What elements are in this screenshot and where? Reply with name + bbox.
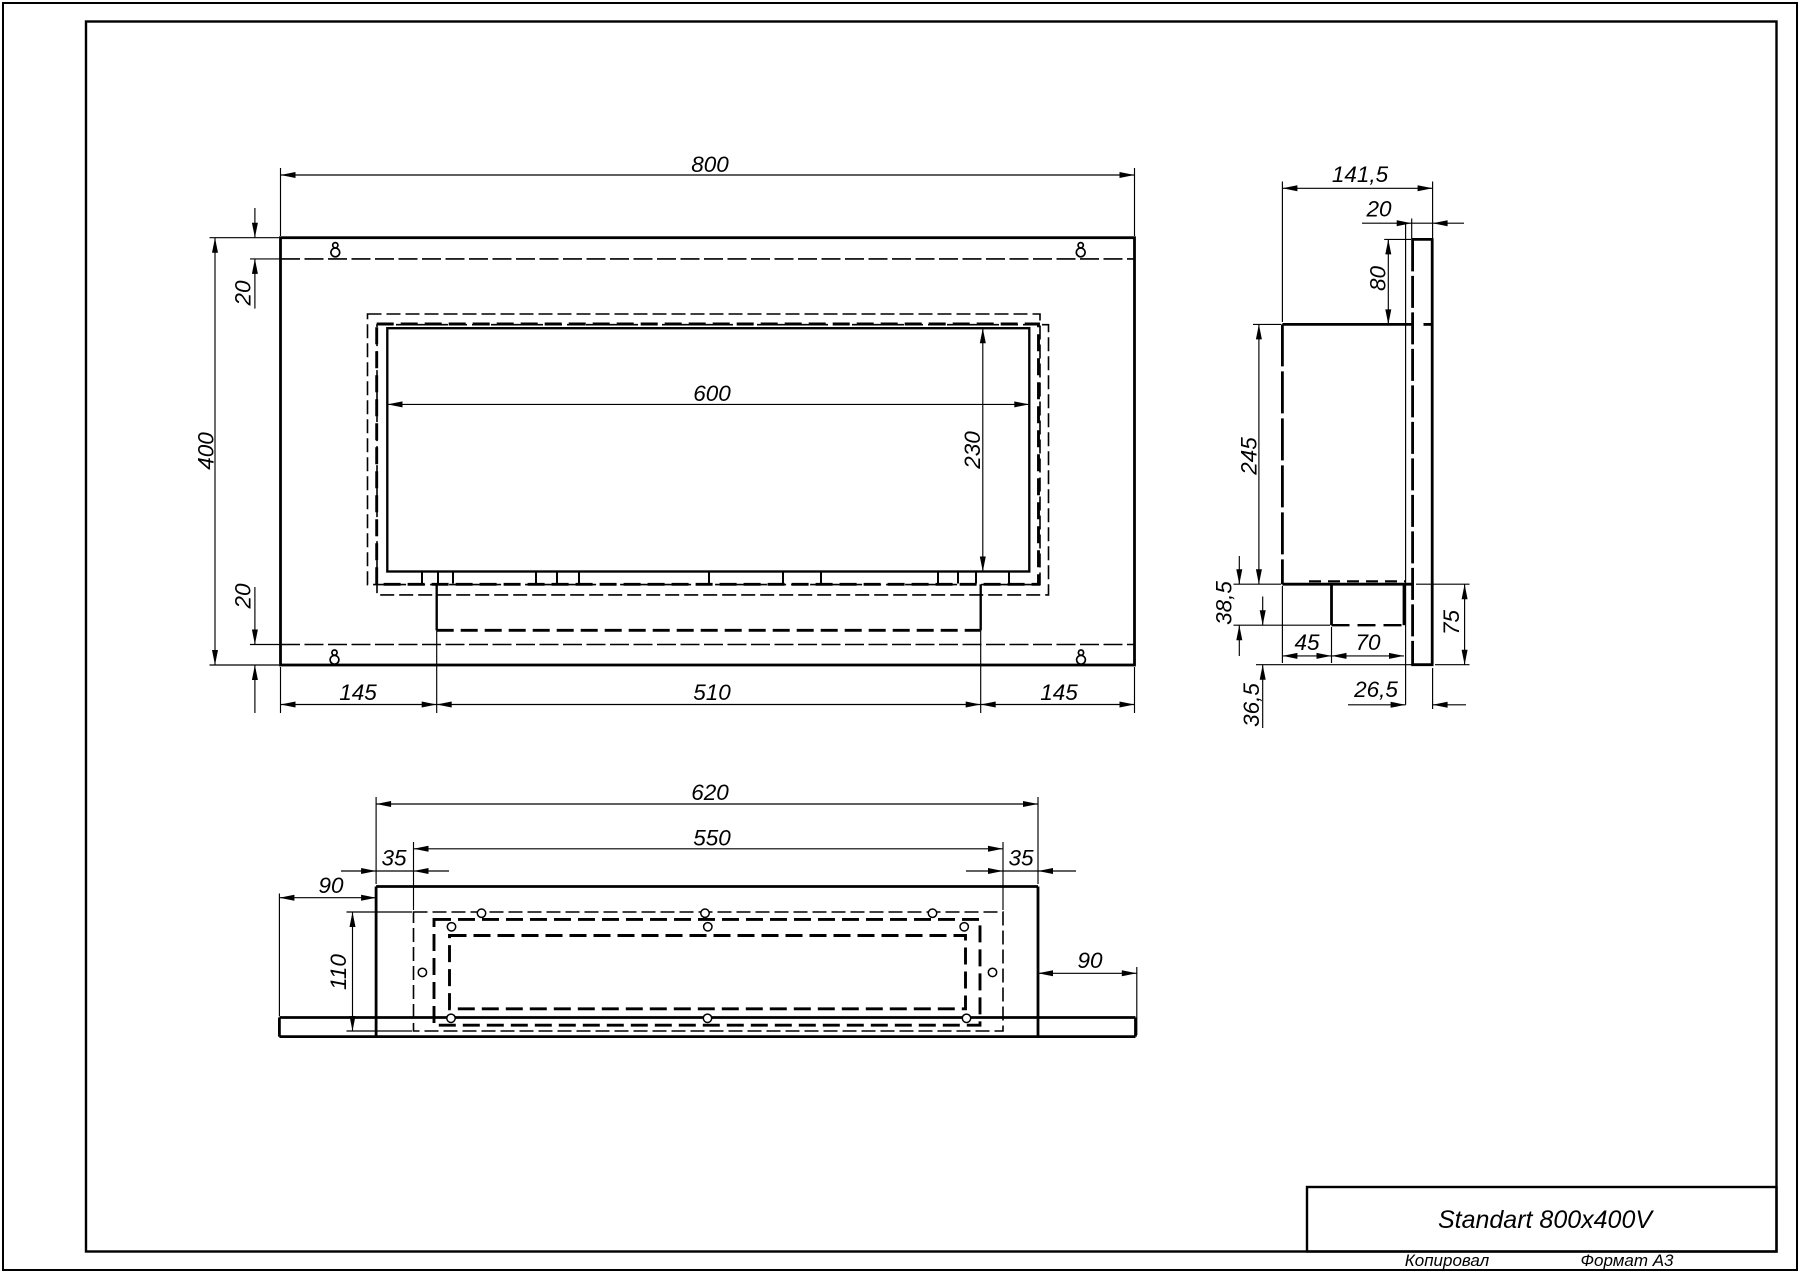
svg-text:550: 550 (693, 826, 731, 851)
svg-text:Формат А3: Формат А3 (1580, 1251, 1674, 1270)
svg-text:600: 600 (693, 381, 731, 406)
svg-text:26,5: 26,5 (1353, 677, 1398, 702)
svg-text:75: 75 (1439, 610, 1464, 636)
svg-text:145: 145 (339, 680, 377, 705)
svg-text:35: 35 (381, 846, 407, 871)
svg-text:245: 245 (1237, 437, 1262, 476)
svg-text:Копировал: Копировал (1405, 1251, 1490, 1270)
svg-text:20: 20 (1365, 197, 1392, 222)
svg-text:36,5: 36,5 (1239, 683, 1264, 727)
svg-text:620: 620 (691, 780, 729, 805)
svg-text:20: 20 (231, 280, 256, 307)
svg-text:20: 20 (231, 583, 256, 610)
svg-text:510: 510 (693, 680, 731, 705)
svg-text:145: 145 (1040, 680, 1078, 705)
svg-text:38,5: 38,5 (1212, 581, 1237, 625)
svg-text:90: 90 (1077, 948, 1103, 973)
svg-text:90: 90 (318, 873, 344, 898)
svg-text:Standart 800x400V: Standart 800x400V (1438, 1206, 1654, 1234)
svg-text:80: 80 (1366, 266, 1391, 292)
svg-text:45: 45 (1294, 630, 1320, 655)
svg-text:35: 35 (1008, 846, 1034, 871)
svg-text:400: 400 (194, 432, 219, 470)
svg-text:110: 110 (326, 954, 351, 990)
svg-text:141,5: 141,5 (1332, 162, 1389, 187)
svg-text:800: 800 (691, 152, 729, 177)
svg-text:70: 70 (1355, 630, 1381, 655)
svg-text:230: 230 (960, 431, 985, 470)
